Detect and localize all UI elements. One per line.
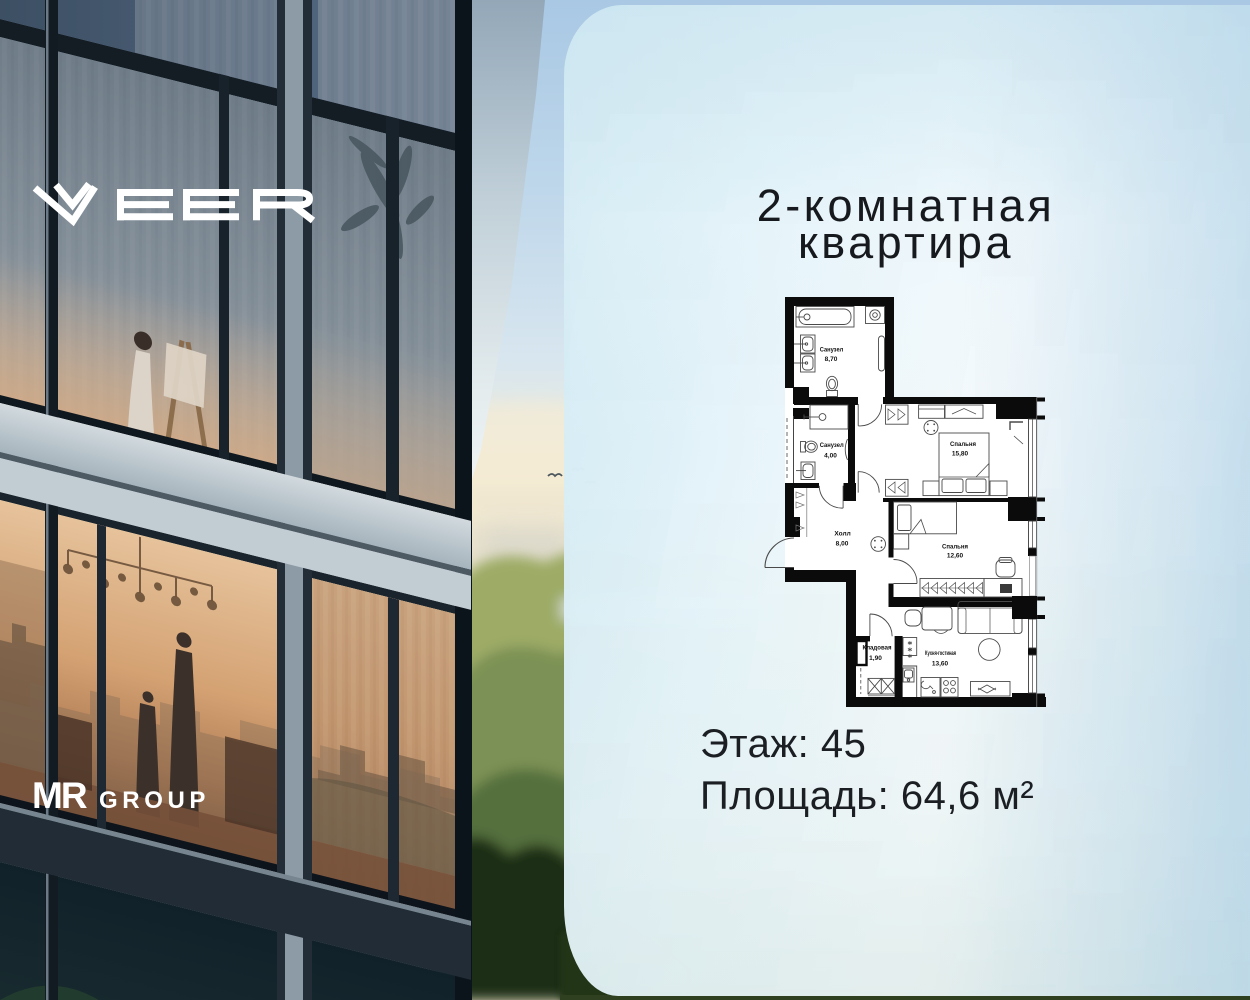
svg-text:8,70: 8,70: [825, 356, 838, 363]
svg-text:8,00: 8,00: [836, 541, 849, 548]
svg-text:Спальня: Спальня: [942, 544, 968, 551]
svg-text:4,00: 4,00: [824, 453, 837, 460]
svg-text:12,60: 12,60: [947, 553, 964, 560]
svg-text:Спальня: Спальня: [950, 441, 976, 448]
svg-text:Кладовая: Кладовая: [863, 645, 892, 652]
svg-text:Холл: Холл: [834, 531, 850, 538]
svg-text:MR: MR: [32, 775, 87, 816]
svg-text:Кухня-гостиная: Кухня-гостиная: [925, 650, 956, 657]
svg-text:13,60: 13,60: [932, 661, 949, 668]
svg-text:Санузел: Санузел: [820, 347, 844, 354]
svg-text:1,90: 1,90: [869, 655, 882, 662]
svg-text:GROUP: GROUP: [99, 787, 210, 814]
svg-text:15,80: 15,80: [952, 451, 969, 458]
svg-text:Санузел: Санузел: [820, 442, 844, 449]
